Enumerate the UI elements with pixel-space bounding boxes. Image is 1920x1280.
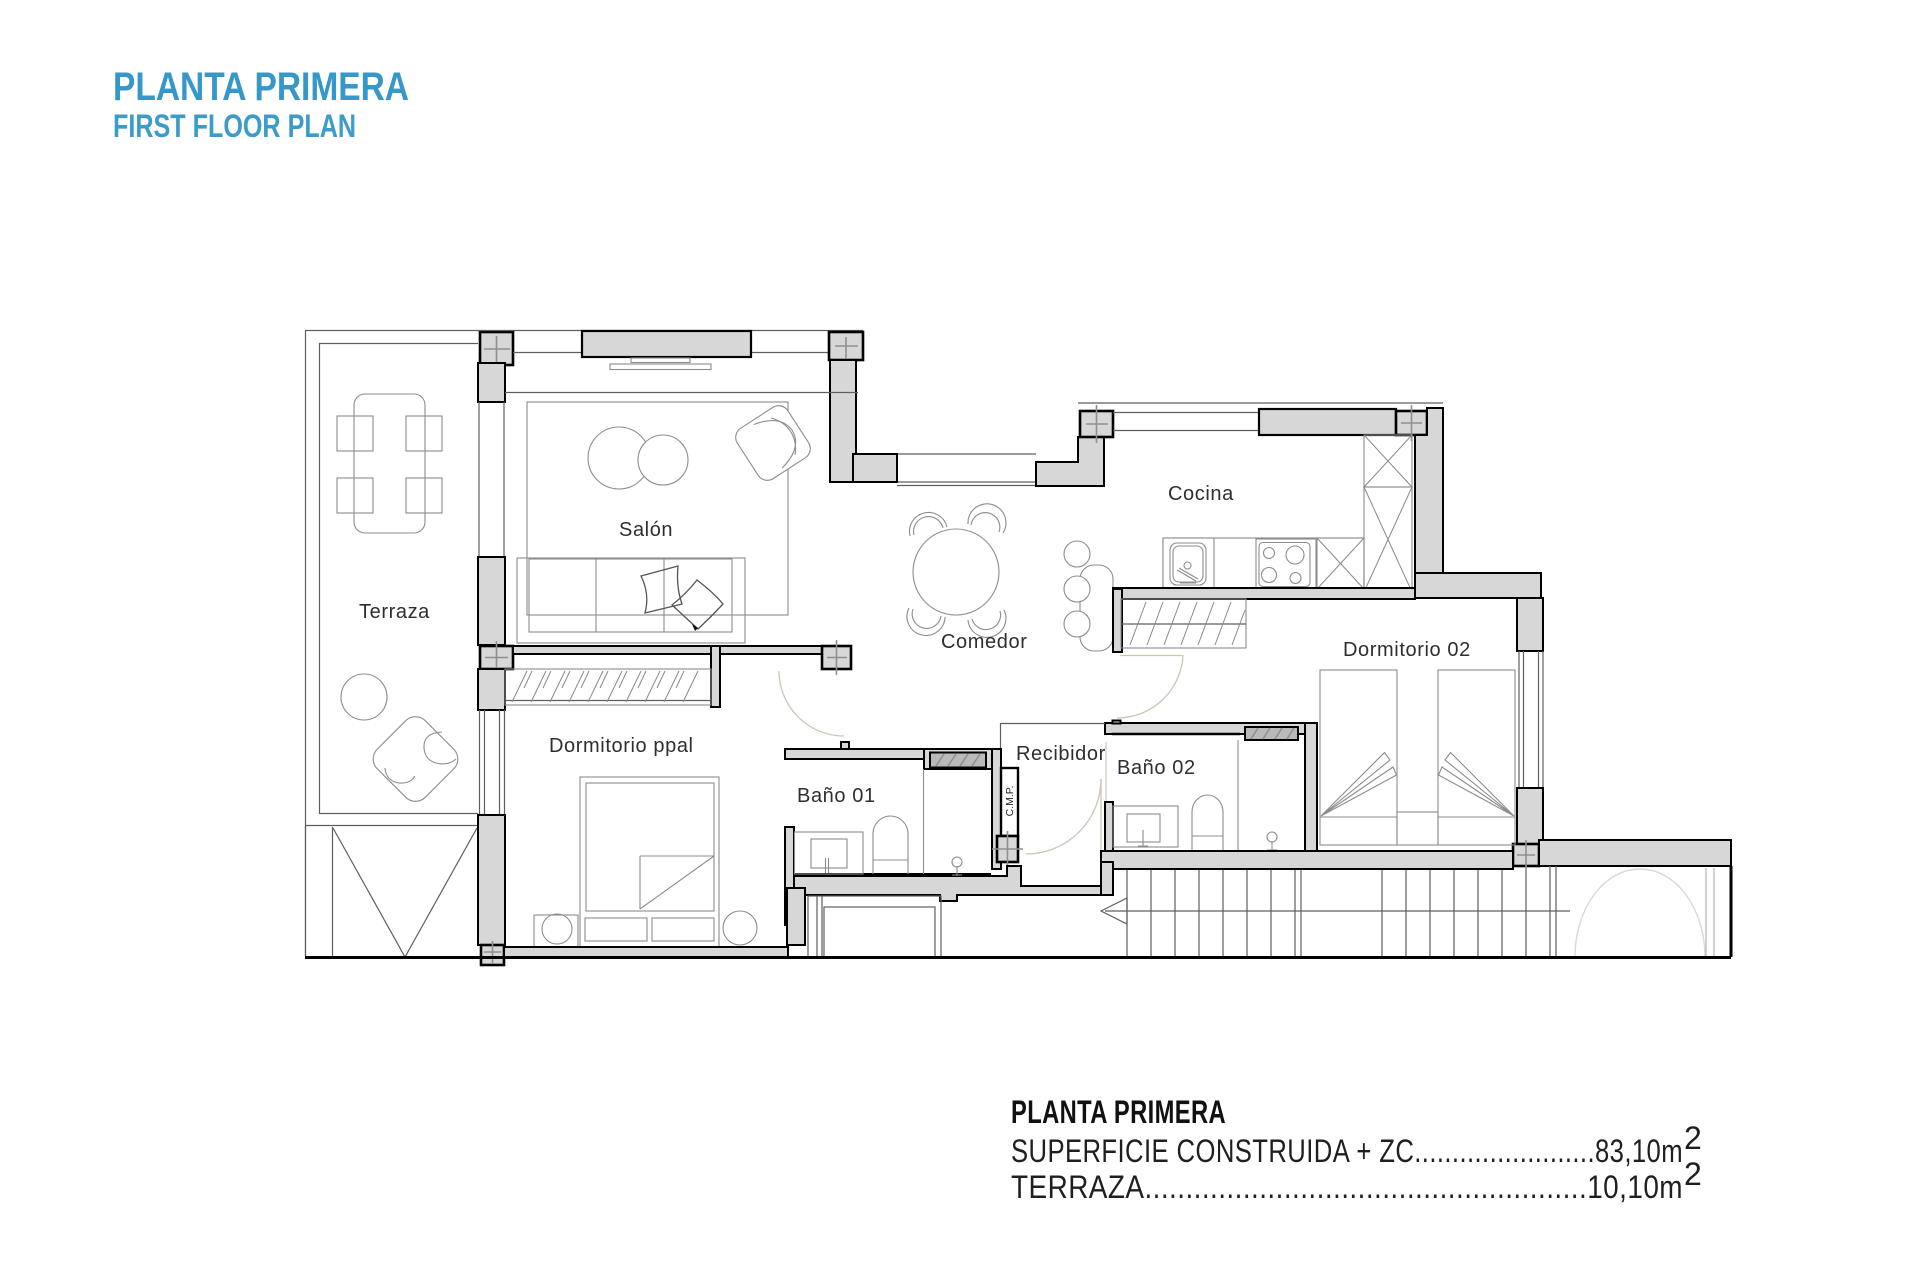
svg-text:Recibidor: Recibidor [1016,743,1106,765]
svg-text:FIRST FLOOR PLAN: FIRST FLOOR PLAN [113,108,356,144]
svg-text:Baño 02: Baño 02 [1117,757,1196,779]
svg-text:2: 2 [1684,1120,1702,1156]
svg-text:PLANTA PRIMERA: PLANTA PRIMERA [1011,1094,1226,1130]
svg-text:Baño 01: Baño 01 [797,785,876,807]
svg-text:SUPERFICIE CONSTRUIDA + ZC....: SUPERFICIE CONSTRUIDA + ZC..............… [1011,1133,1683,1169]
svg-text:TERRAZA.......................: TERRAZA.................................… [1011,1169,1683,1205]
svg-text:Comedor: Comedor [941,631,1027,653]
svg-text:Cocina: Cocina [1168,483,1234,505]
svg-text:Dormitorio ppal: Dormitorio ppal [549,735,694,757]
svg-text:PLANTA PRIMERA: PLANTA PRIMERA [113,65,409,109]
svg-text:C.M.P.: C.M.P. [1004,786,1016,817]
svg-text:Salón: Salón [619,519,673,541]
svg-text:Dormitorio 02: Dormitorio 02 [1343,639,1471,661]
svg-text:Terraza: Terraza [359,601,430,623]
svg-text:2: 2 [1684,1156,1702,1192]
